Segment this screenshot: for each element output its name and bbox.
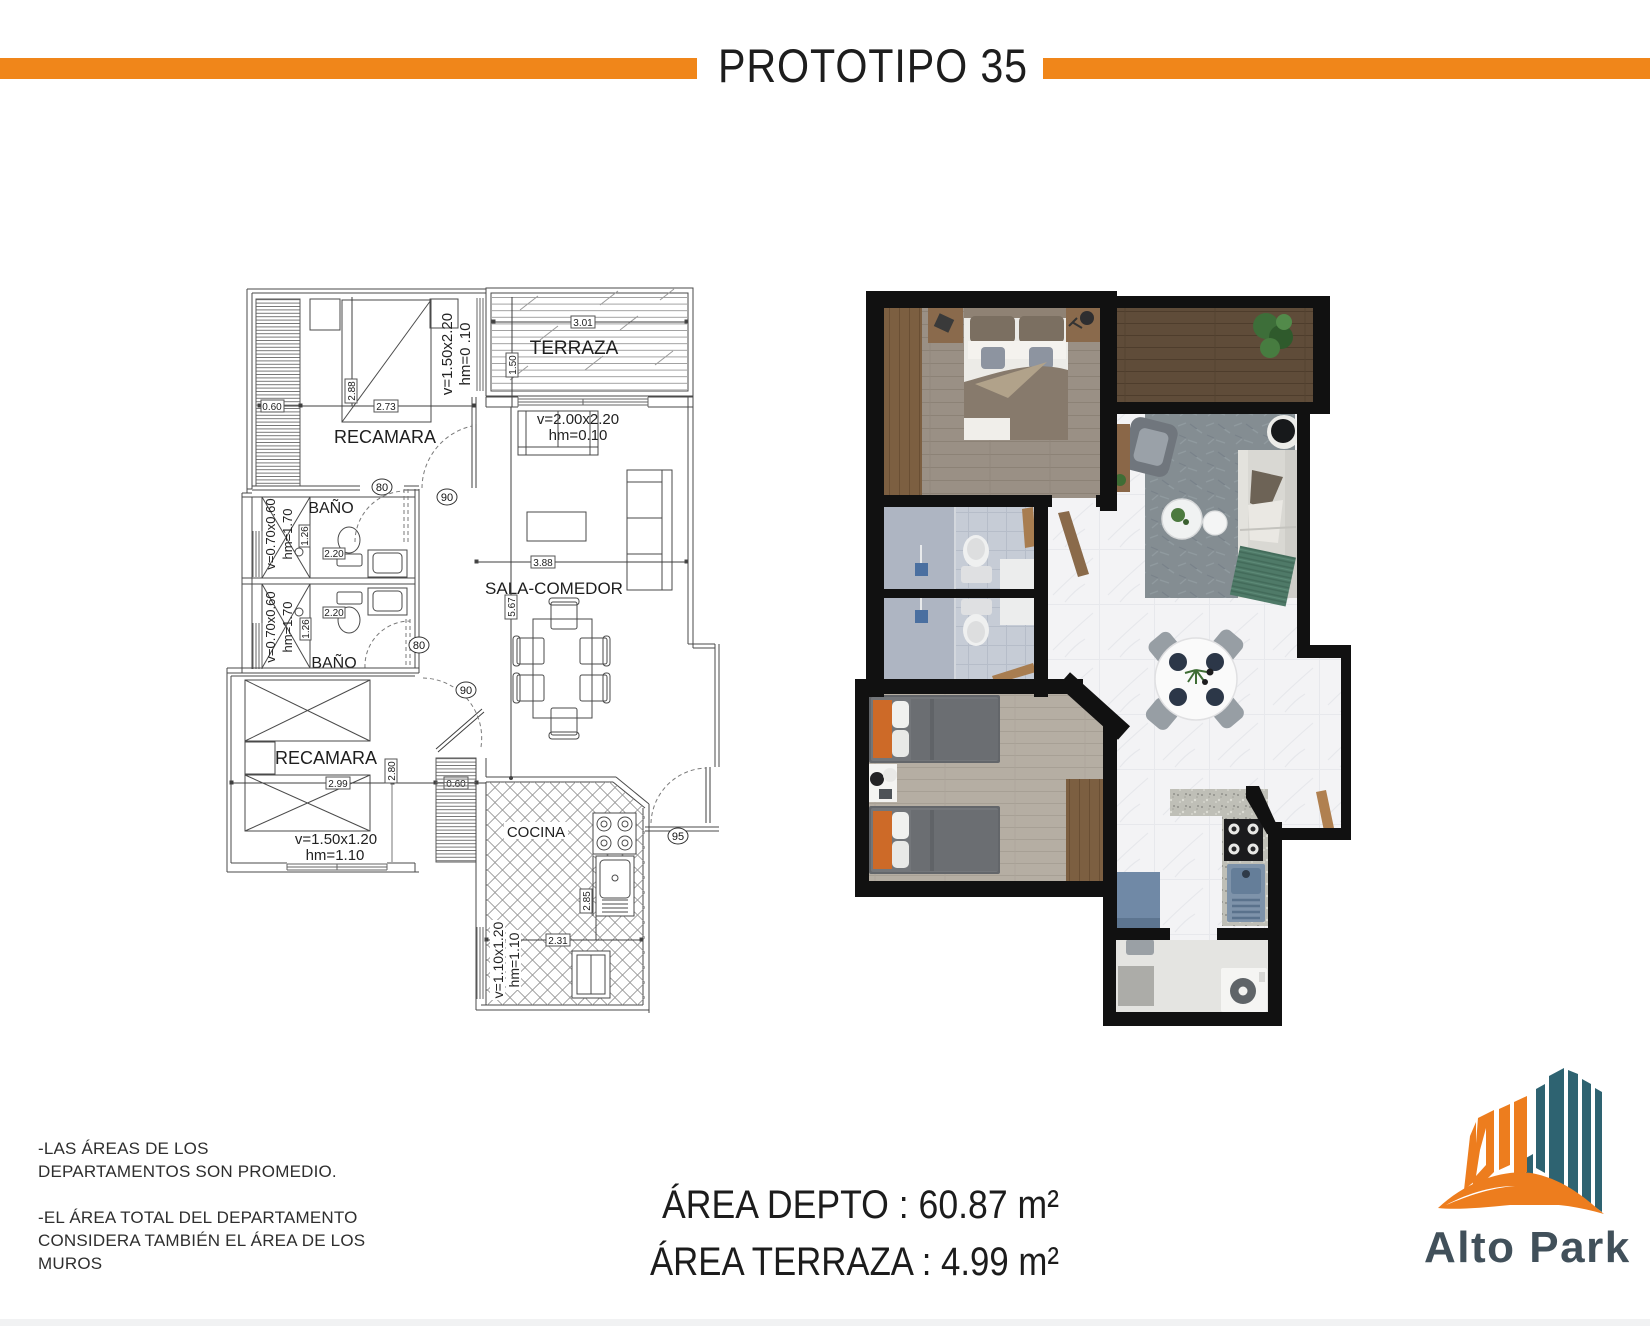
svg-text:Alto Park: Alto Park [1424, 1223, 1631, 1272]
